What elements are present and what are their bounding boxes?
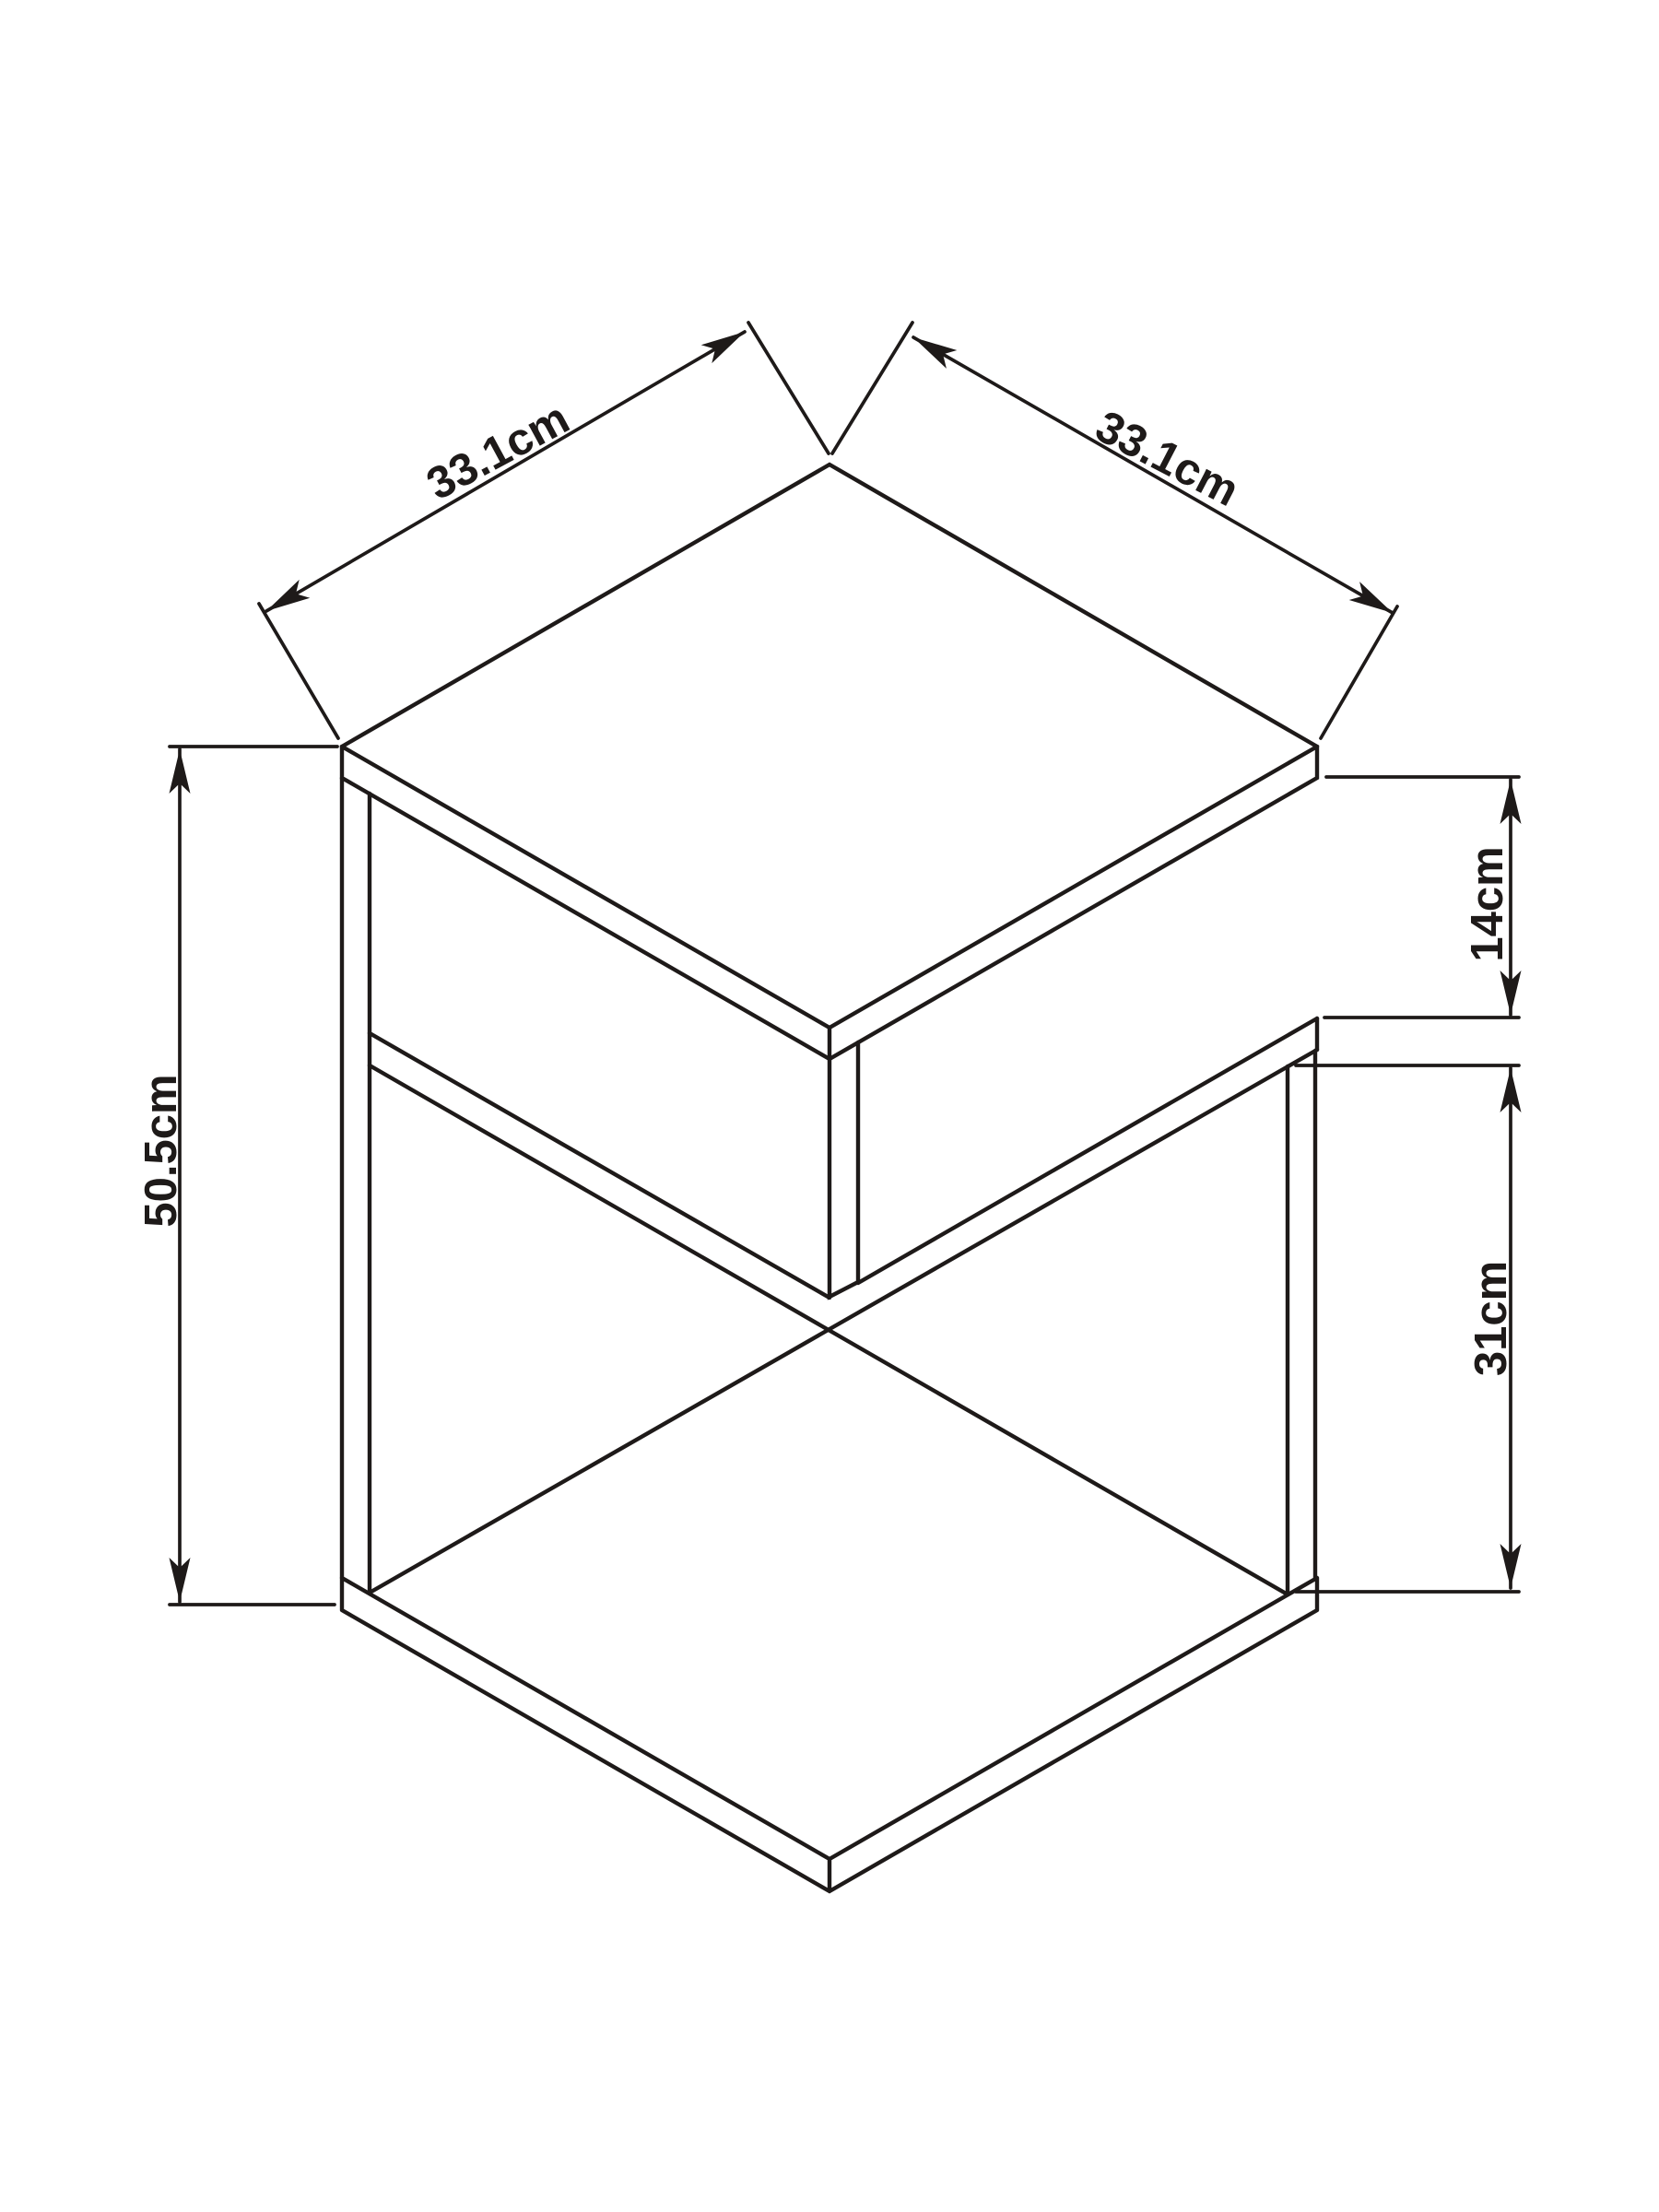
svg-text:14cm: 14cm <box>1463 846 1512 961</box>
svg-text:31cm: 31cm <box>1466 1261 1516 1376</box>
svg-text:50.5cm: 50.5cm <box>136 1074 186 1227</box>
